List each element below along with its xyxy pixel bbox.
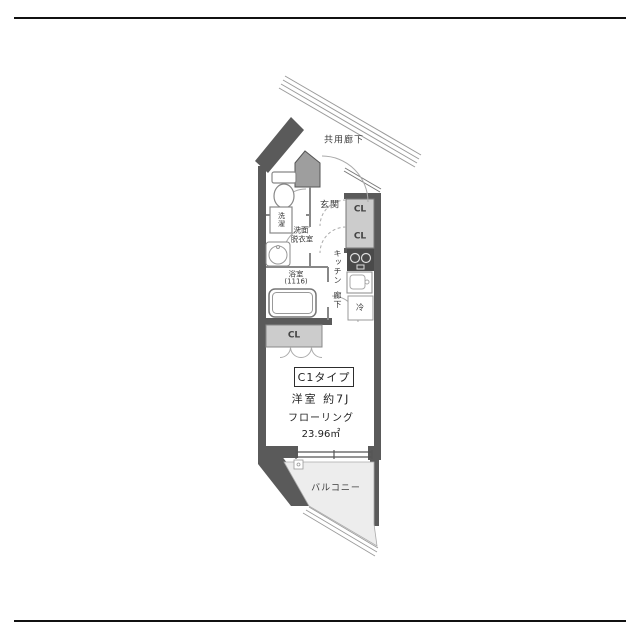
wall-corner-window	[368, 446, 381, 460]
hallway-label: 廊下	[333, 291, 341, 309]
balcony-drain-icon	[294, 460, 303, 469]
closet-top-2-label: CL	[354, 233, 366, 242]
basin-icon	[266, 242, 290, 266]
bathroom-label-line2: (1116)	[284, 279, 307, 286]
closet-hall-label: CL	[288, 332, 300, 341]
entrance-label: 玄関	[320, 202, 340, 211]
bathtub-icon	[269, 289, 316, 317]
wall-left	[258, 166, 266, 450]
common-corridor-label: 共用廊下	[324, 137, 364, 146]
unit-type-badge: C1タイプ	[294, 367, 354, 387]
unit-type-label: C1タイプ	[298, 369, 351, 385]
kitchen-sink-icon	[347, 272, 372, 293]
floorplan-linework	[0, 0, 640, 640]
stove-icon	[347, 249, 374, 271]
hall-closet-door-arc-3	[301, 347, 312, 358]
flooring-label: フローリング	[288, 414, 354, 424]
main-room-label: 洋室 約7J	[292, 394, 351, 405]
balcony-label: バルコニー	[311, 485, 361, 494]
wall-closet-top	[344, 193, 381, 199]
washer-label: 洗濯	[278, 212, 285, 228]
toilet-icon	[272, 172, 296, 208]
area-label: 23.96㎡	[302, 430, 341, 440]
refrigerator-label: 冷	[356, 304, 364, 312]
kitchen-label: キッチン	[333, 249, 341, 285]
hall-closet-door-arc-1	[280, 347, 291, 358]
common-corridor-hatch	[279, 76, 421, 167]
closet-top-1-label: CL	[354, 206, 366, 215]
wall-hall-bottom	[258, 318, 332, 325]
balcony-window	[296, 450, 372, 459]
hall-closet-door-arc-2	[291, 347, 302, 358]
entrance-porch-block	[295, 151, 320, 187]
wall-right	[374, 193, 381, 460]
washroom-label-line1: 洗面	[294, 226, 309, 234]
washroom-label-line2: 脱衣室	[291, 235, 314, 243]
floorplan-image: 共用廊下 玄関 CL CL 洗濯 洗面 脱衣室 浴室 (1116) キッチン 廊…	[0, 0, 640, 640]
hall-closet-door-arc-4	[312, 347, 323, 358]
balcony-area	[284, 460, 378, 556]
